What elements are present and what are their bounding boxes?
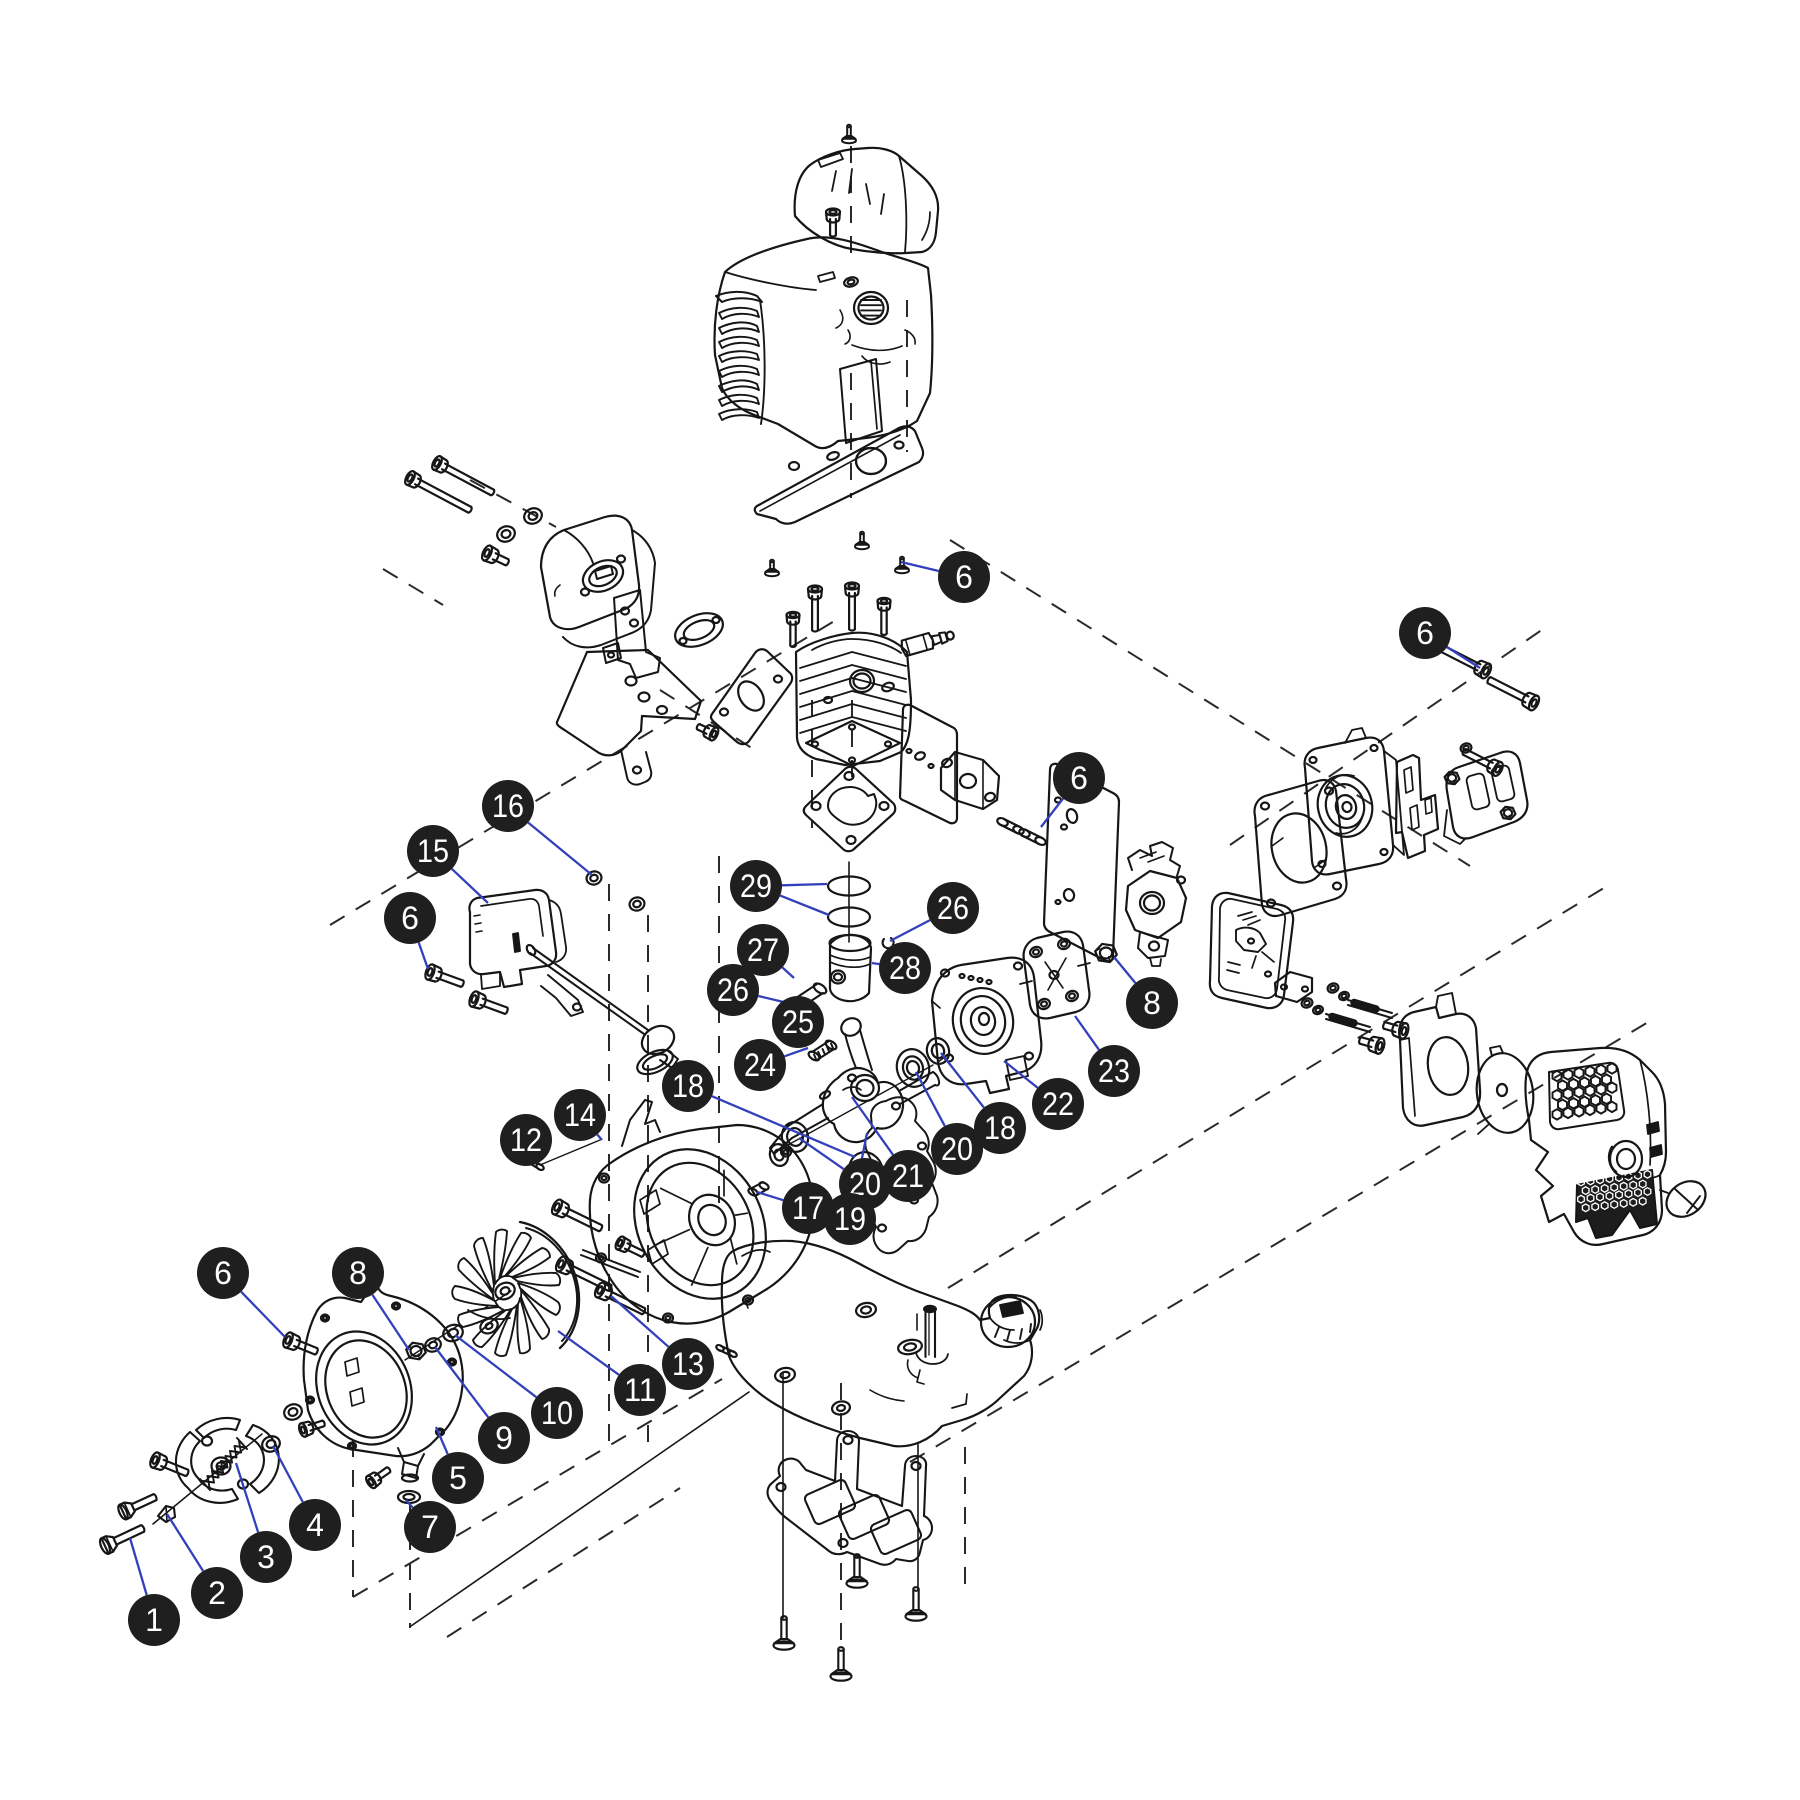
svg-text:27: 27 xyxy=(747,932,779,968)
svg-text:15: 15 xyxy=(417,833,449,869)
svg-text:13: 13 xyxy=(672,1346,704,1382)
svg-text:6: 6 xyxy=(1070,760,1088,796)
svg-text:4: 4 xyxy=(306,1507,324,1543)
svg-text:26: 26 xyxy=(717,972,749,1008)
svg-text:19: 19 xyxy=(834,1201,866,1237)
svg-text:23: 23 xyxy=(1098,1053,1130,1089)
svg-text:22: 22 xyxy=(1042,1086,1074,1122)
svg-text:8: 8 xyxy=(1143,985,1161,1021)
svg-text:6: 6 xyxy=(214,1255,232,1291)
svg-text:2: 2 xyxy=(208,1575,226,1611)
svg-text:6: 6 xyxy=(401,900,419,936)
svg-text:17: 17 xyxy=(792,1190,824,1226)
svg-text:11: 11 xyxy=(624,1372,656,1408)
svg-text:1: 1 xyxy=(145,1602,163,1638)
svg-text:3: 3 xyxy=(257,1539,275,1575)
svg-text:18: 18 xyxy=(672,1068,704,1104)
svg-text:12: 12 xyxy=(510,1122,542,1158)
svg-text:26: 26 xyxy=(937,890,969,926)
svg-text:21: 21 xyxy=(892,1158,924,1194)
svg-text:5: 5 xyxy=(449,1460,467,1496)
svg-text:29: 29 xyxy=(740,868,772,904)
svg-text:24: 24 xyxy=(744,1047,776,1083)
svg-text:28: 28 xyxy=(889,950,921,986)
svg-text:18: 18 xyxy=(984,1110,1016,1146)
svg-text:6: 6 xyxy=(1416,615,1434,651)
svg-text:8: 8 xyxy=(349,1255,367,1291)
svg-text:14: 14 xyxy=(564,1097,596,1133)
svg-text:20: 20 xyxy=(941,1131,973,1167)
svg-text:6: 6 xyxy=(955,559,973,595)
svg-text:10: 10 xyxy=(541,1395,573,1431)
svg-text:25: 25 xyxy=(782,1004,814,1040)
svg-text:16: 16 xyxy=(492,788,524,824)
svg-text:7: 7 xyxy=(421,1509,439,1545)
svg-text:9: 9 xyxy=(495,1420,513,1456)
